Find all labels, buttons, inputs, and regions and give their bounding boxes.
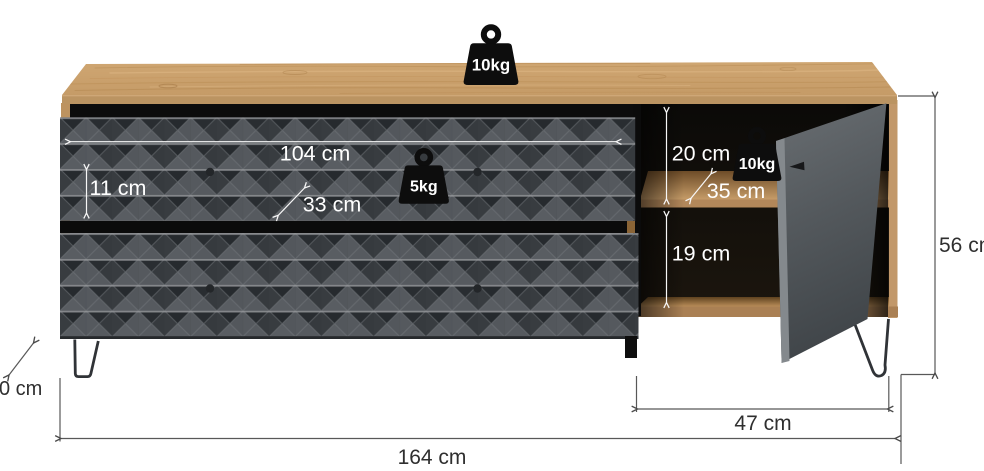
- svg-text:20 cm: 20 cm: [672, 142, 731, 166]
- svg-text:104 cm: 104 cm: [280, 142, 351, 166]
- svg-text:33 cm: 33 cm: [303, 193, 362, 217]
- svg-text:35 cm: 35 cm: [707, 179, 766, 203]
- svg-text:19 cm: 19 cm: [672, 242, 731, 266]
- svg-text:0 cm: 0 cm: [0, 378, 42, 400]
- svg-text:10kg: 10kg: [739, 156, 775, 173]
- svg-text:10kg: 10kg: [472, 56, 510, 75]
- svg-text:56 cm: 56 cm: [939, 234, 984, 257]
- svg-text:5kg: 5kg: [410, 178, 438, 195]
- svg-text:164 cm: 164 cm: [398, 446, 467, 469]
- svg-text:47 cm: 47 cm: [734, 412, 791, 435]
- svg-text:11 cm: 11 cm: [90, 176, 147, 200]
